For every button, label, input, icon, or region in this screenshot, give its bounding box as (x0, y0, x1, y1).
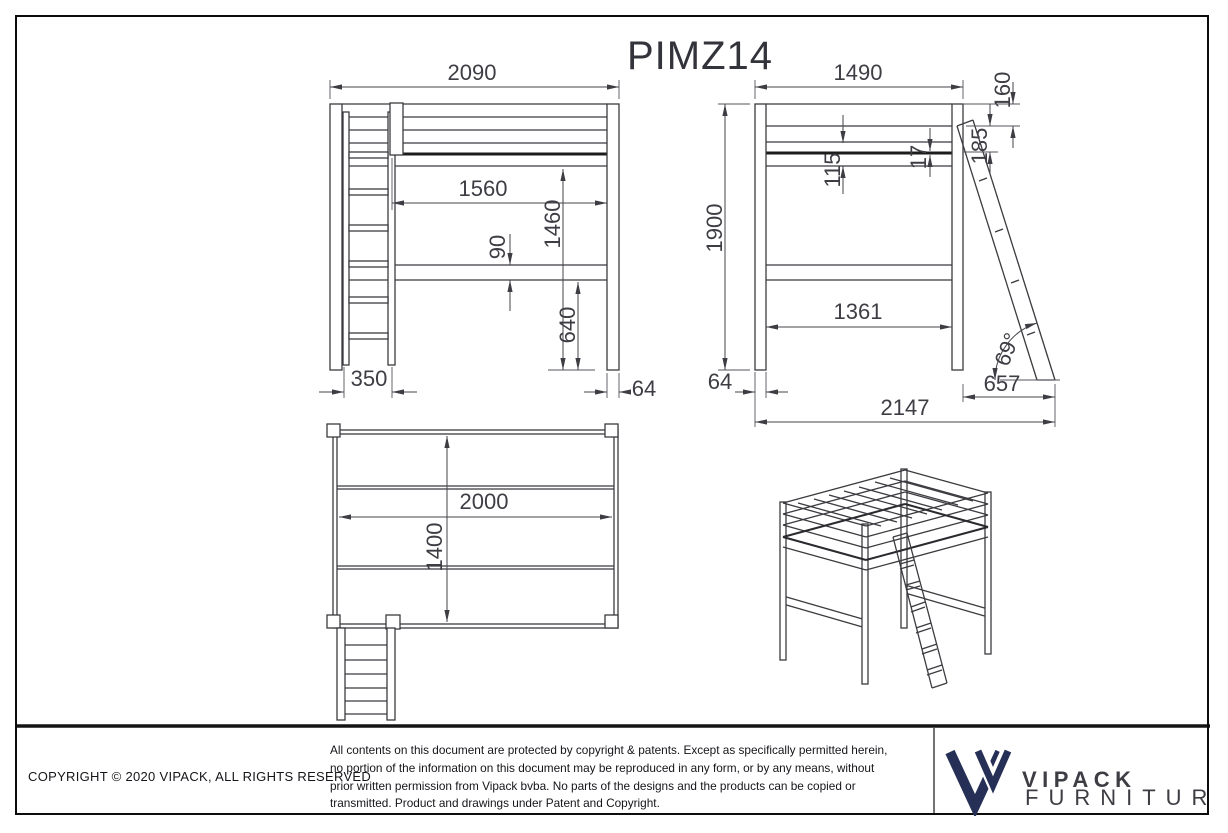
front-ladder (343, 103, 403, 365)
logo-tagline-text: FURNITURE (1025, 785, 1212, 810)
dim-side-base-offset: 115 (820, 152, 845, 187)
dim-side-ladder-angle: 69° (989, 329, 1024, 369)
disclaimer-line: All contents on this document are protec… (330, 742, 887, 760)
dim-side-inner-depth: 1361 (834, 299, 883, 324)
top-view-post (605, 615, 618, 628)
disclaimer-line: no portion of the information on this do… (330, 760, 887, 778)
dim-side-post-thickness: 64 (708, 369, 732, 394)
copyright-notice: COPYRIGHT © 2020 VIPACK, ALL RIGHTS RESE… (28, 769, 371, 784)
dim-top-bed-width: 1400 (422, 523, 447, 572)
dim-front-lower-clearance: 640 (555, 307, 580, 344)
dim-side-top-rail-height: 160 (990, 72, 1015, 109)
side-right-post (952, 104, 963, 370)
dim-front-post-thickness: 64 (632, 376, 656, 401)
dim-front-underbed-height: 1460 (540, 200, 565, 249)
top-view-ladder (337, 628, 395, 720)
top-dimensions: 2000 1400 (339, 436, 612, 622)
top-view-post (327, 615, 340, 628)
iso-post (985, 492, 991, 654)
dim-front-inner-length: 1560 (459, 176, 508, 201)
drawing-title: PIMZ14 (570, 34, 830, 79)
iso-slats (798, 478, 973, 526)
dim-side-slat-thickness: 17 (906, 145, 931, 169)
disclaimer-line: prior written permission from Vipack bvb… (330, 778, 887, 796)
front-left-post (330, 104, 342, 370)
top-view-post (327, 424, 340, 437)
dim-top-bed-length: 2000 (460, 489, 509, 514)
side-left-post (755, 104, 766, 370)
dim-side-total-footprint: 2147 (881, 395, 930, 420)
dim-front-overall-width: 2090 (448, 60, 497, 85)
dim-side-guardrail-height: 185 (967, 128, 992, 165)
top-view-ladder-post (386, 615, 400, 629)
legal-disclaimer: All contents on this document are protec… (330, 742, 887, 813)
technical-drawing-canvas: 2090 1560 1460 90 640 350 (0, 0, 1228, 833)
isometric-view (780, 469, 991, 688)
dim-front-ladder-width: 350 (351, 366, 388, 391)
front-right-post (607, 104, 619, 370)
dim-front-rail-height: 90 (485, 235, 510, 259)
dim-side-overall-depth: 1490 (834, 60, 883, 85)
top-view: 2000 1400 (327, 424, 618, 720)
dim-side-ladder-reach: 657 (984, 371, 1021, 396)
top-view-post (605, 424, 618, 437)
disclaimer-line: transmitted. Product and drawings under … (330, 795, 887, 813)
vipack-logo: VIPACK FURNITURE (942, 742, 1212, 816)
dim-side-overall-height: 1900 (702, 204, 727, 253)
side-view: 1490 1900 160 185 115 17 (702, 60, 1060, 427)
front-view: 2090 1560 1460 90 640 350 (319, 60, 656, 401)
vipack-logo-mark-icon (950, 747, 1009, 806)
drawing-sheet: 2090 1560 1460 90 640 350 (0, 0, 1228, 833)
